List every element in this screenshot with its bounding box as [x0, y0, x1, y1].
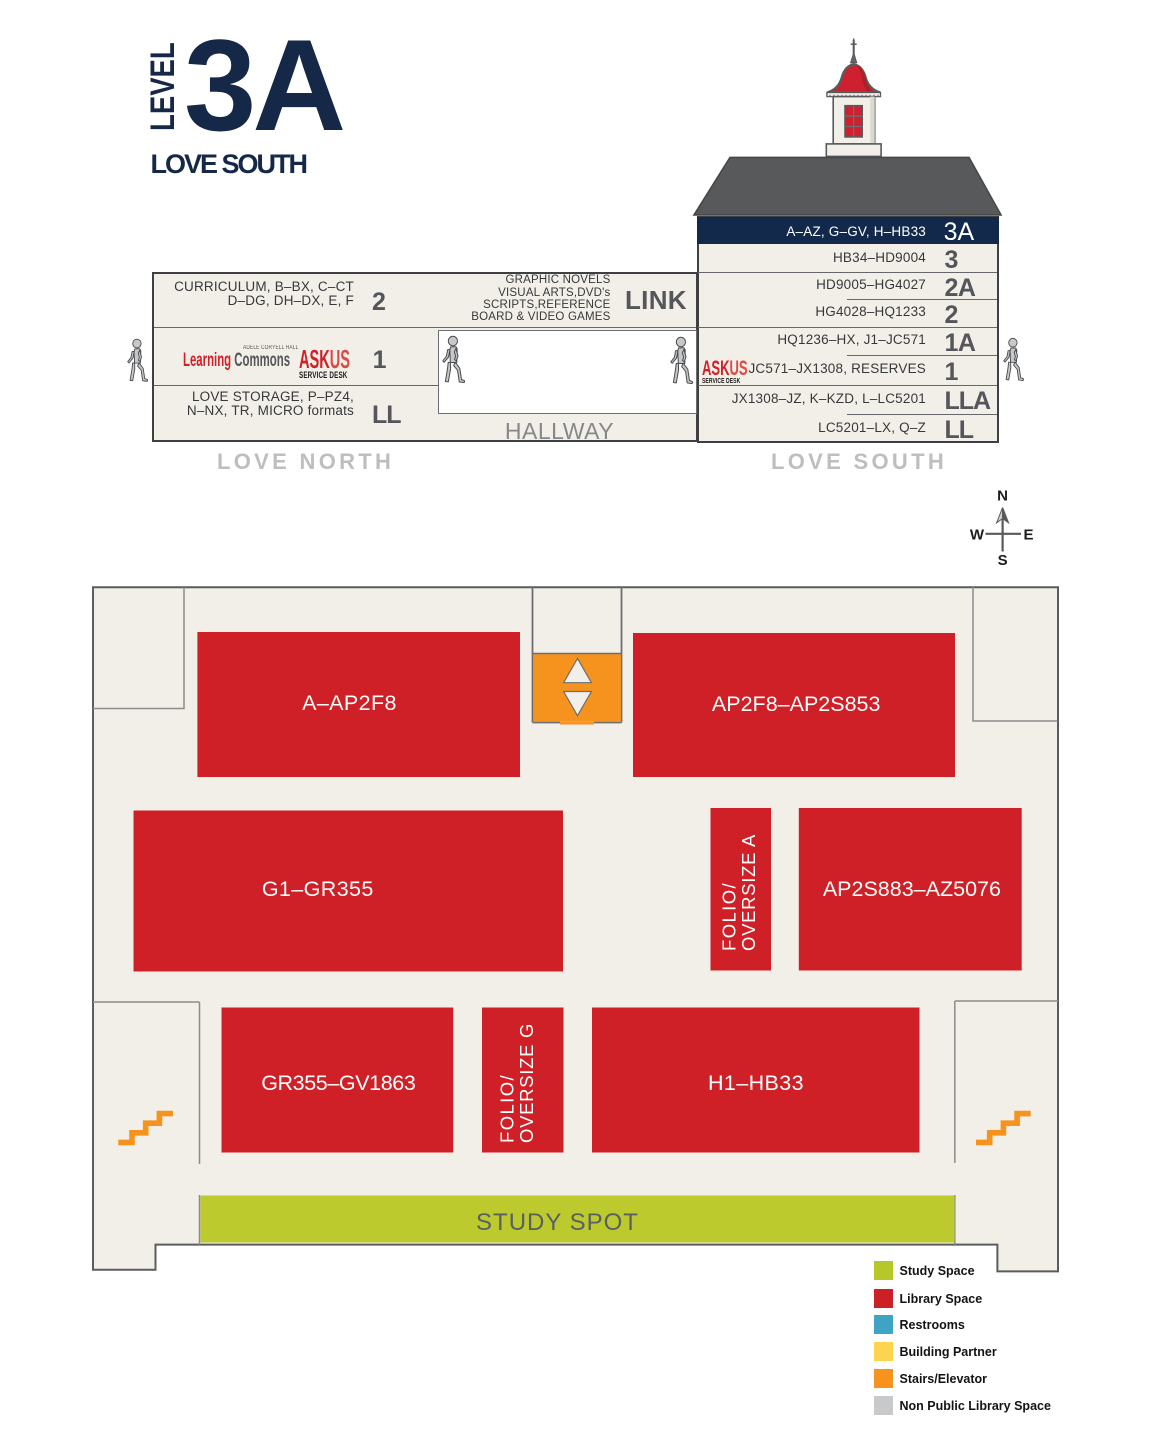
svg-text:OVERSIZE A: OVERSIZE A	[738, 834, 759, 951]
svg-text:A–AP2F8: A–AP2F8	[302, 691, 397, 715]
svg-text:GR355–GV1863: GR355–GV1863	[261, 1071, 416, 1095]
svg-text:FOLIO/: FOLIO/	[719, 882, 740, 951]
svg-text:OVERSIZE G: OVERSIZE G	[516, 1023, 537, 1143]
svg-text:STUDY SPOT: STUDY SPOT	[476, 1209, 639, 1236]
svg-text:N: N	[997, 488, 1008, 505]
svg-text:S: S	[998, 552, 1008, 569]
svg-text:AP2F8–AP2S853: AP2F8–AP2S853	[712, 692, 881, 716]
svg-text:E: E	[1023, 526, 1033, 543]
svg-text:AP2S883–AZ5076: AP2S883–AZ5076	[823, 877, 1001, 901]
svg-text:W: W	[970, 526, 985, 543]
svg-text:FOLIO/: FOLIO/	[496, 1074, 517, 1143]
svg-text:H1–HB33: H1–HB33	[708, 1071, 804, 1095]
svg-text:G1–GR355: G1–GR355	[262, 877, 374, 901]
